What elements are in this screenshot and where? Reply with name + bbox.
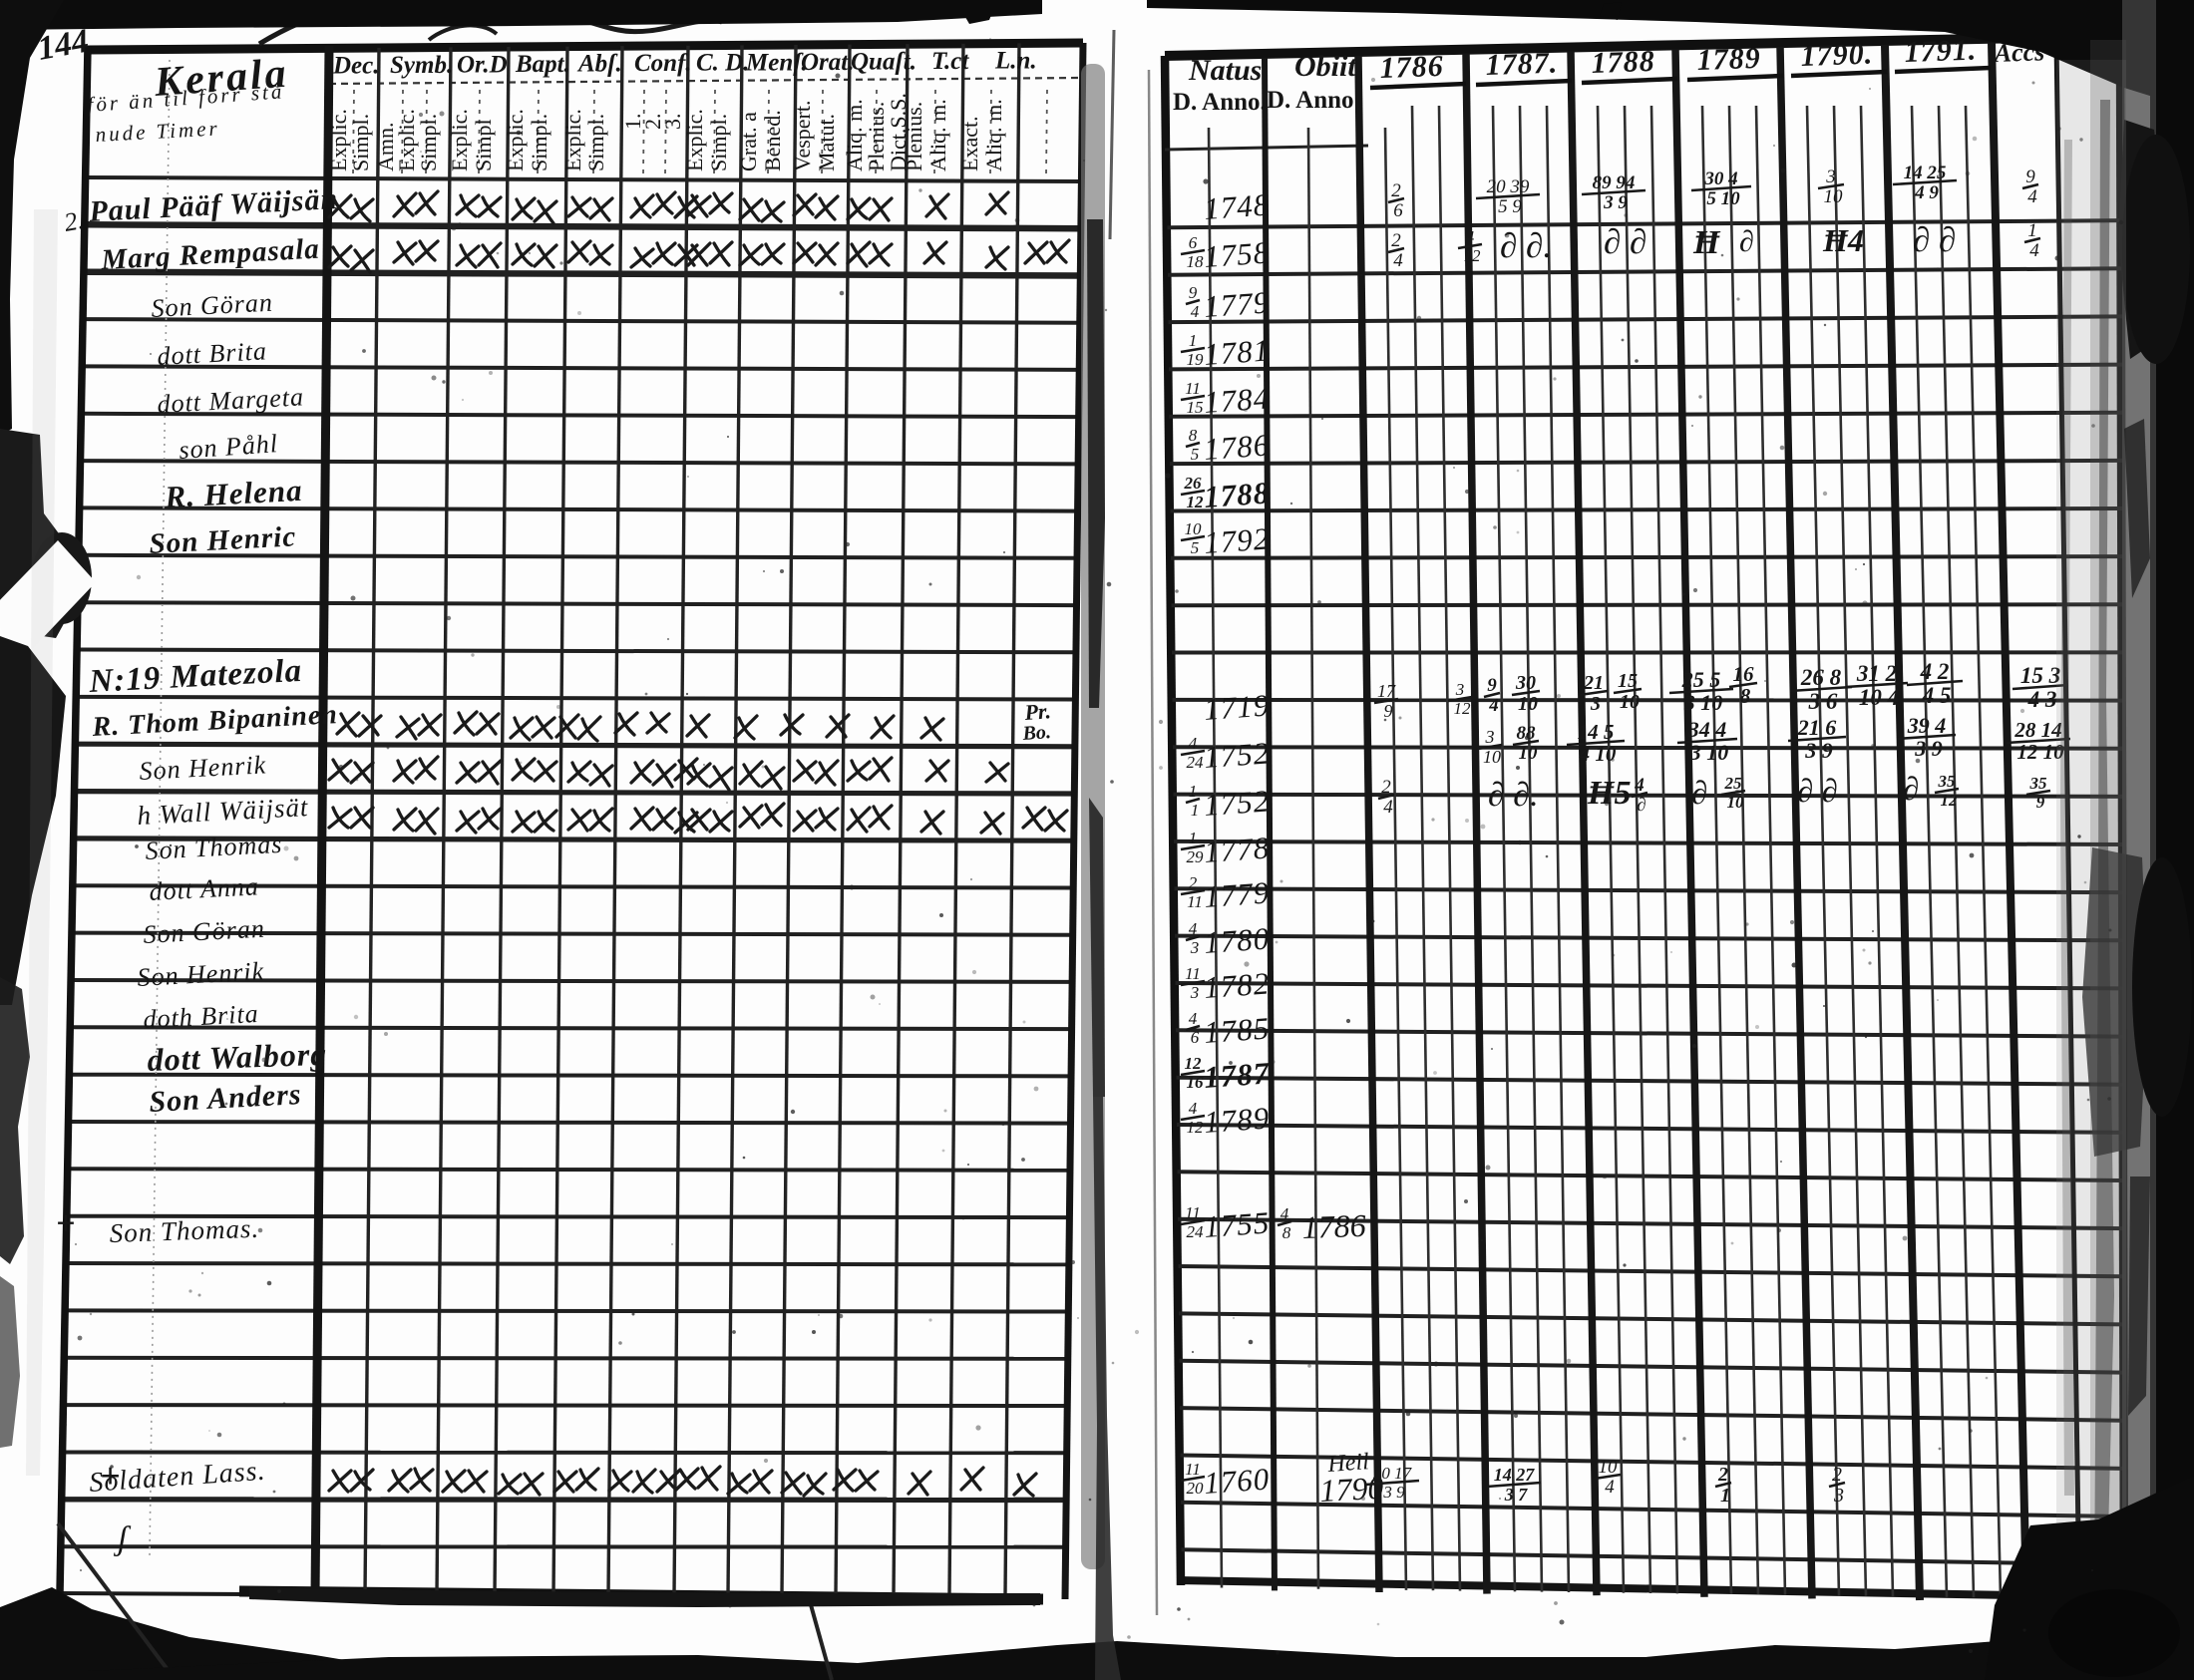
svg-text:16: 16 [1187,1073,1205,1092]
svg-text:4: 4 [1466,227,1475,246]
svg-text:Simpl.: Simpl. [416,114,441,171]
svg-text:1784: 1784 [1203,380,1271,420]
svg-text:10: 10 [1519,743,1539,764]
svg-text:dott Brita: dott Brita [157,336,268,371]
svg-text:Orat.: Orat. [801,49,854,76]
svg-text:1758: 1758 [1203,234,1271,274]
svg-text:20 17: 20 17 [1373,1464,1413,1483]
svg-text:20: 20 [1187,1479,1205,1498]
svg-text:4: 4 [1393,250,1403,271]
svg-text:26: 26 [1184,474,1203,493]
svg-text:17: 17 [1377,681,1396,701]
svg-text:2: 2 [1717,1464,1728,1486]
svg-text:Simpl.: Simpl. [527,114,551,171]
svg-text:12: 12 [1464,246,1482,265]
svg-text:3: 3 [1190,938,1200,957]
svg-text:10: 10 [1185,519,1203,538]
svg-text:R. Helena: R. Helena [164,473,304,514]
svg-text:1785: 1785 [1203,1010,1271,1050]
svg-text:3 10: 3 10 [1689,740,1729,765]
svg-text:4 9: 4 9 [1914,182,1939,203]
svg-text:Simpl: Simpl [471,119,496,171]
svg-text:4: 4 [1383,797,1393,818]
svg-text:1: 1 [1191,801,1200,820]
svg-text:8: 8 [1282,1223,1291,1242]
svg-text:10: 10 [1620,691,1640,713]
svg-text:11: 11 [1187,892,1203,911]
svg-text:Simpl.: Simpl. [583,114,608,171]
svg-text:Simpl.: Simpl. [706,114,731,171]
svg-text:1787: 1787 [1203,1055,1272,1095]
svg-text:3 9: 3 9 [1804,738,1833,763]
svg-text:11: 11 [1185,1203,1201,1222]
svg-text:28 14: 28 14 [2013,718,2061,742]
svg-text:4: 4 [2029,240,2039,261]
svg-text:T.ct: T.ct [931,48,969,75]
svg-text:6: 6 [1189,233,1198,252]
svg-text:Son Thomas.: Son Thomas. [109,1213,259,1248]
svg-text:Menſ.: Menſ. [745,49,808,76]
svg-text:1752: 1752 [1203,735,1271,775]
svg-text:35: 35 [2029,774,2048,793]
svg-text:6: 6 [1191,1028,1200,1047]
svg-text:2: 2 [1832,1464,1842,1486]
svg-text:1786: 1786 [1379,50,1444,85]
svg-text:4 5: 4 5 [1922,683,1952,708]
svg-text:Bened.: Bened. [760,110,785,171]
svg-text:1: 1 [1189,782,1198,801]
svg-text:1748: 1748 [1203,186,1271,226]
svg-text:1790.: 1790. [1800,37,1874,73]
svg-text:19: 19 [1187,350,1205,369]
svg-text:Explic.: Explic. [503,109,528,171]
svg-text:30 4: 30 4 [1703,168,1737,189]
svg-text:12: 12 [1454,699,1472,718]
svg-text:16: 16 [1733,662,1755,686]
svg-text:Or.D: Or.D [457,51,508,78]
svg-text:34 4: 34 4 [1687,717,1727,742]
svg-text:Plenius.: Plenius. [902,102,926,171]
svg-text:31 2: 31 2 [1856,661,1897,686]
svg-text:1780: 1780 [1203,920,1271,960]
svg-text:Explic.: Explic. [447,109,472,171]
svg-text:3: 3 [1833,1485,1844,1507]
svg-text:12: 12 [1185,1054,1203,1073]
svg-text:∂: ∂ [1637,795,1645,816]
svg-text:dott Anna: dott Anna [149,871,260,906]
svg-text:11: 11 [1185,379,1201,398]
svg-text:8: 8 [1189,426,1198,445]
svg-text:1781: 1781 [1203,332,1271,372]
svg-text:Ħ: Ħ [1692,224,1721,261]
svg-text:∂ ∂.: ∂ ∂. [1500,226,1552,265]
svg-text:1779: 1779 [1203,874,1271,914]
svg-text:10: 10 [1824,186,1844,207]
svg-text:1778: 1778 [1203,830,1271,869]
svg-text:1752: 1752 [1203,783,1271,823]
svg-text:Explic.: Explic. [560,109,585,171]
svg-text:15 3: 15 3 [2020,663,2060,688]
svg-text:24: 24 [1187,753,1205,772]
svg-text:8: 8 [1740,684,1751,708]
svg-text:25: 25 [1724,774,1743,793]
svg-text:3 9: 3 9 [1603,192,1628,213]
svg-text:24: 24 [1187,1222,1205,1241]
svg-text:1787.: 1787. [1485,46,1559,82]
svg-text:∂ ∂: ∂ ∂ [1797,774,1838,810]
svg-text:9: 9 [1384,701,1393,721]
svg-text:1782: 1782 [1203,965,1271,1005]
svg-text:1788: 1788 [1591,45,1655,80]
svg-text:∂ ∂.: ∂ ∂. [1488,777,1539,814]
svg-text:14 5: 14 5 [1578,720,1615,744]
svg-text:6: 6 [1393,200,1403,221]
svg-text:D. Anno: D. Anno [1267,87,1354,114]
svg-text:10 4: 10 4 [1859,685,1899,710]
svg-text:∂ ∂: ∂ ∂ [1913,220,1956,259]
svg-text:3: 3 [1485,727,1495,747]
svg-text:Obiit.: Obiit. [1294,50,1363,83]
svg-text:1789: 1789 [1696,42,1761,77]
svg-text:1792: 1792 [1203,520,1271,560]
svg-text:4: 4 [1488,695,1499,716]
svg-text:10: 10 [1727,793,1745,812]
svg-text:4: 4 [2027,186,2037,207]
svg-text:4: 4 [1280,1204,1289,1223]
svg-text:∂ ∂: ∂ ∂ [1604,222,1646,261]
svg-text:10: 10 [1483,747,1501,767]
svg-text:D. Anno.: D. Anno. [1173,89,1267,116]
svg-text:5: 5 [1191,538,1200,557]
svg-text:12: 12 [1941,791,1959,810]
svg-text:Aliq. m.: Aliq. m. [925,99,950,171]
svg-text:15: 15 [1187,398,1204,417]
svg-text:3: 3 [1825,167,1836,187]
svg-text:1788: 1788 [1203,475,1271,514]
svg-text:Vespert.: Vespert. [790,101,815,171]
svg-text:4: 4 [1189,734,1198,753]
svg-text:4 2: 4 2 [1920,659,1950,684]
svg-text:4: 4 [1189,1009,1198,1028]
svg-text:9: 9 [1189,283,1198,302]
svg-text:Ħ4: Ħ4 [1822,222,1864,258]
svg-text:Matut.: Matut. [814,114,839,171]
svg-text:Dec.: Dec. [332,52,380,79]
svg-text:5 10: 5 10 [1706,188,1740,209]
svg-text:3 7: 3 7 [1504,1485,1529,1505]
svg-text:11: 11 [1185,964,1201,983]
svg-text:12: 12 [1187,493,1205,511]
svg-text:25 5: 25 5 [1681,667,1721,692]
svg-text:Ħ5: Ħ5 [1587,775,1631,812]
svg-text:30: 30 [1515,672,1536,694]
svg-text:3 10: 3 10 [1683,690,1723,715]
svg-text:Quaſt.: Quaſt. [851,49,916,76]
svg-text:∂: ∂ [1903,772,1919,808]
svg-text:1789: 1789 [1203,1100,1271,1140]
svg-text:35: 35 [1938,772,1957,791]
svg-text:1: 1 [1189,331,1198,350]
svg-text:∂: ∂ [1739,225,1754,258]
svg-text:Explic.: Explic. [682,109,707,171]
svg-text:3: 3 [1455,680,1465,699]
svg-text:1786: 1786 [1203,427,1271,467]
svg-text:dott Walborg: dott Walborg [147,1036,328,1078]
svg-text:1: 1 [1720,1485,1730,1507]
svg-text:Simpl.: Simpl. [348,114,373,171]
svg-text:39 4: 39 4 [1907,713,1947,738]
svg-text:1786: 1786 [1301,1207,1366,1245]
svg-text:14 27: 14 27 [1494,1465,1536,1485]
svg-text:29: 29 [1187,847,1205,866]
svg-text:10: 10 [1518,693,1538,715]
svg-text:1: 1 [1189,829,1198,847]
svg-text:12: 12 [1187,1118,1205,1137]
svg-text:3: 3 [1590,693,1601,715]
svg-text:2: 2 [1189,873,1198,892]
svg-text:18: 18 [1187,252,1205,271]
svg-text:Symb.: Symb. [390,52,453,79]
svg-text:∂: ∂ [1691,776,1707,812]
svg-text:Grat. a: Grat. a [736,112,761,171]
svg-text:Aliq. m.: Aliq. m. [981,99,1006,171]
svg-text:4: 4 [1189,1099,1198,1118]
svg-text:Bo.: Bo. [1021,721,1052,745]
svg-text:+: + [100,1456,121,1496]
svg-text:Natus.: Natus. [1188,54,1270,87]
svg-text:+: + [56,1205,75,1242]
svg-text:C. D.: C. D. [696,50,749,77]
svg-text:21: 21 [1583,672,1604,694]
svg-text:4: 4 [1605,1477,1615,1498]
svg-text:9: 9 [2036,793,2045,812]
svg-text:3: 3 [1190,983,1200,1002]
svg-text:4 3: 4 3 [2027,687,2057,712]
svg-text:Abſ.: Abſ. [576,51,622,78]
svg-text:1760: 1760 [1203,1461,1271,1501]
svg-text:3 9: 3 9 [1914,736,1943,761]
svg-text:4 10: 4 10 [1579,742,1617,766]
svg-text:5: 5 [1191,445,1200,464]
svg-text:4: 4 [1191,302,1200,321]
svg-text:4: 4 [1634,775,1645,796]
svg-text:21 6: 21 6 [1797,715,1837,740]
svg-text:Exact.: Exact. [957,116,982,171]
svg-text:doth Brita: doth Brita [143,999,260,1034]
svg-text:26 8: 26 8 [1800,665,1842,690]
svg-text:5 9: 5 9 [1498,196,1522,217]
svg-text:11: 11 [1185,1460,1201,1479]
svg-text:1779: 1779 [1203,284,1271,324]
svg-text:Conf.: Conf. [634,50,692,77]
svg-text:1791.: 1791. [1904,33,1978,69]
svg-text:1755: 1755 [1203,1204,1271,1244]
svg-text:3 9: 3 9 [1382,1483,1405,1502]
svg-text:Bapt.: Bapt. [515,51,570,78]
svg-text:4: 4 [1189,919,1198,938]
svg-text:L.n.: L.n. [994,48,1037,75]
svg-text:3 6: 3 6 [1808,689,1838,714]
svg-text:1719: 1719 [1203,687,1271,727]
